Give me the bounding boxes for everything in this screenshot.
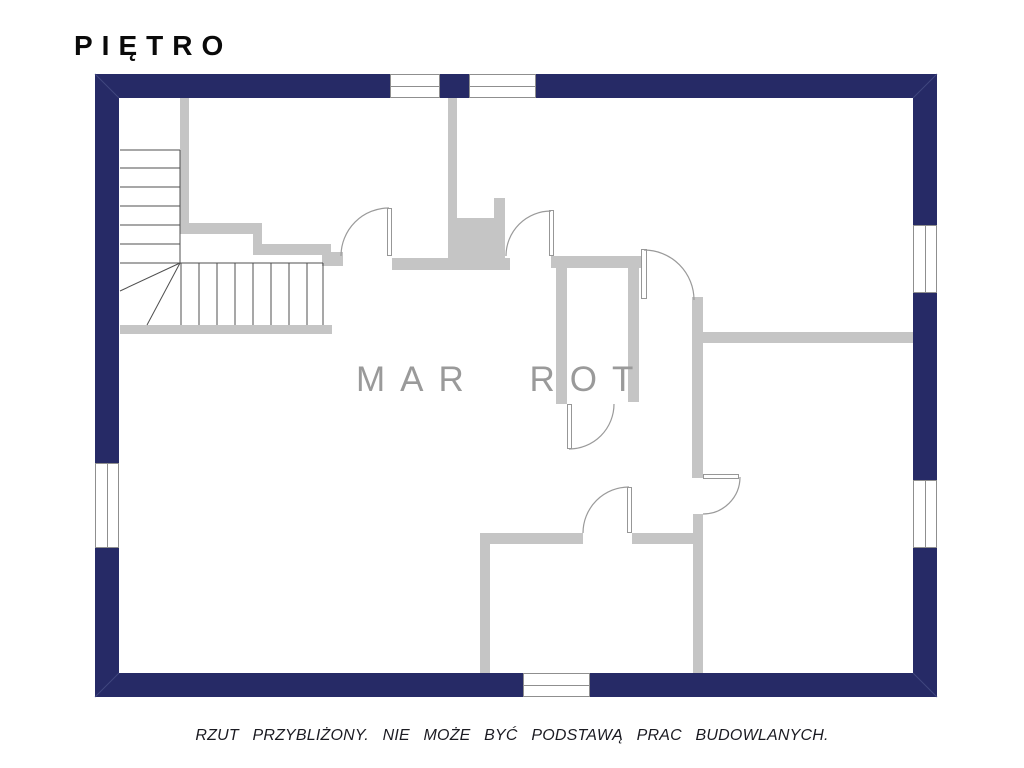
door-east-room-leaf bbox=[703, 474, 739, 479]
window-pane-divider bbox=[524, 685, 589, 686]
south-room-wall-east-segment bbox=[632, 533, 693, 544]
stair-tread-line bbox=[120, 263, 180, 291]
stair-wall-lower bbox=[253, 244, 331, 255]
plan-caption: RZUT PRZYBLIŻONY. NIE MOŻE BYĆ PODSTAWĄ … bbox=[160, 727, 864, 745]
chimney-notch bbox=[494, 198, 505, 258]
window-north-1 bbox=[390, 74, 440, 98]
east-room-divider bbox=[703, 332, 913, 343]
stair-wall-vertical bbox=[180, 97, 189, 224]
window-west bbox=[95, 463, 119, 548]
floor-plan-page: PIĘTRO MAR ROT RZUT PRZYBLIŻONY. NIE MOŻ… bbox=[0, 0, 1024, 768]
outer-wall-east bbox=[913, 74, 937, 697]
door-south-room-swing-arc bbox=[583, 487, 629, 533]
door-northeast-room-leaf bbox=[641, 249, 647, 299]
window-north-2 bbox=[469, 74, 536, 98]
door-hall-west-swing-arc bbox=[341, 208, 389, 256]
window-pane-divider bbox=[391, 86, 439, 87]
window-east-2 bbox=[913, 480, 937, 548]
window-east-1 bbox=[913, 225, 937, 293]
east-room-wall-upper bbox=[692, 297, 703, 478]
door-northeast-room-swing-arc bbox=[644, 250, 694, 300]
window-pane-divider bbox=[470, 86, 535, 87]
hall-wall-stub bbox=[322, 252, 343, 266]
south-room-wall-west-segment bbox=[480, 533, 583, 544]
outer-wall-west bbox=[95, 74, 119, 697]
hall-wall-east-segment bbox=[551, 256, 642, 268]
stair-base-wall bbox=[120, 325, 332, 334]
page-title: PIĘTRO bbox=[74, 30, 232, 62]
door-south-room-leaf bbox=[627, 487, 632, 533]
door-east-room-swing-arc bbox=[703, 477, 740, 514]
stair-tread-line bbox=[147, 263, 180, 325]
window-south bbox=[523, 673, 590, 697]
door-hall-east-swing-arc bbox=[506, 211, 551, 256]
south-room-wall-vertical bbox=[480, 544, 490, 673]
chimney-block bbox=[455, 218, 496, 258]
door-hall-east-leaf bbox=[549, 210, 554, 256]
east-room-wall-lower bbox=[693, 514, 703, 673]
door-hall-west-leaf bbox=[387, 208, 392, 256]
stair-wall-upper bbox=[180, 223, 262, 234]
outer-wall-south bbox=[95, 673, 937, 697]
door-corridor-end-swing-arc bbox=[569, 404, 614, 449]
window-pane-divider bbox=[925, 481, 926, 547]
door-corridor-end-leaf bbox=[567, 404, 572, 449]
watermark: MAR ROT bbox=[356, 360, 648, 400]
window-pane-divider bbox=[925, 226, 926, 292]
window-pane-divider bbox=[107, 464, 108, 547]
hall-wall-west-segment bbox=[392, 258, 510, 270]
